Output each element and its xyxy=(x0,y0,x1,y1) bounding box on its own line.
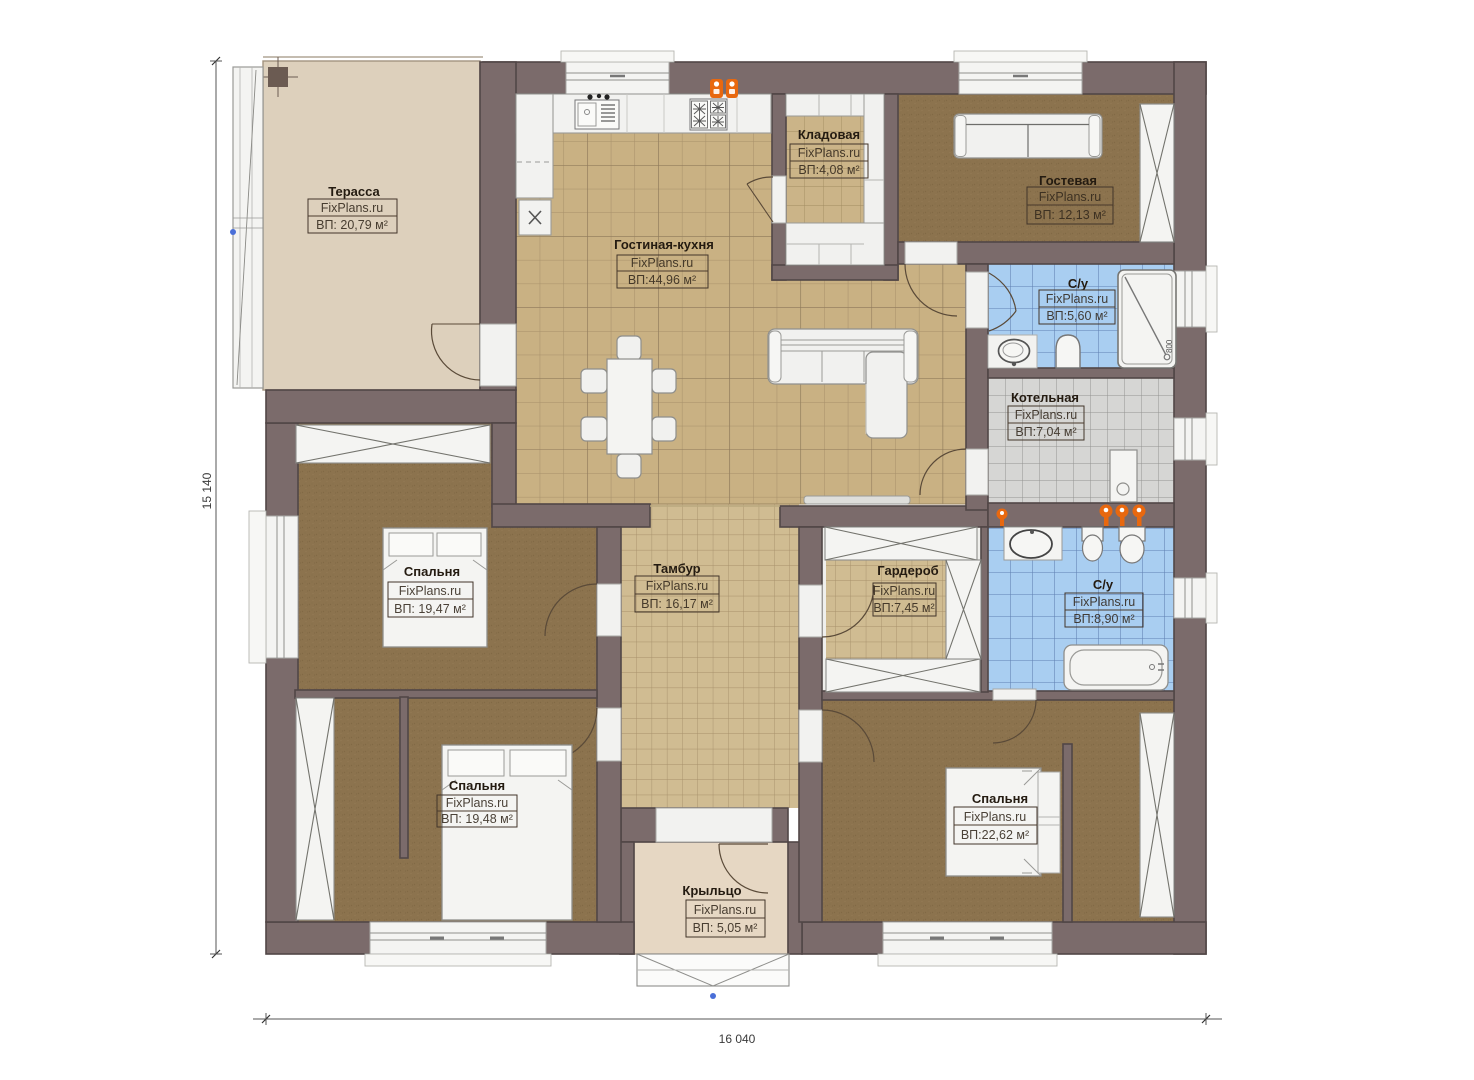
svg-text:FixPlans.ru: FixPlans.ru xyxy=(1073,595,1136,609)
svg-text:Терасса: Терасса xyxy=(328,184,380,199)
svg-text:FixPlans.ru: FixPlans.ru xyxy=(446,796,509,810)
svg-text:Спальня: Спальня xyxy=(449,778,505,793)
svg-text:FixPlans.ru: FixPlans.ru xyxy=(646,579,709,593)
svg-text:15 140: 15 140 xyxy=(200,472,214,509)
svg-text:ВП: 19,48 м²: ВП: 19,48 м² xyxy=(441,812,513,826)
svg-text:Котельная: Котельная xyxy=(1011,390,1079,405)
svg-text:ВП:8,90 м²: ВП:8,90 м² xyxy=(1073,612,1134,626)
svg-text:FixPlans.ru: FixPlans.ru xyxy=(964,810,1027,824)
svg-text:FixPlans.ru: FixPlans.ru xyxy=(798,146,861,160)
svg-text:ВП:22,62 м²: ВП:22,62 м² xyxy=(961,828,1029,842)
svg-text:Тамбур: Тамбур xyxy=(653,561,700,576)
svg-text:ВП:44,96 м²: ВП:44,96 м² xyxy=(628,273,696,287)
svg-text:ВП: 19,47 м²: ВП: 19,47 м² xyxy=(394,602,466,616)
svg-text:800: 800 xyxy=(1165,339,1174,353)
svg-text:FixPlans.ru: FixPlans.ru xyxy=(1039,190,1102,204)
svg-text:ВП:7,04 м²: ВП:7,04 м² xyxy=(1015,425,1076,439)
svg-text:ВП:7,45 м²: ВП:7,45 м² xyxy=(873,601,934,615)
svg-text:ВП: 5,05 м²: ВП: 5,05 м² xyxy=(693,921,758,935)
svg-text:ВП: 12,13 м²: ВП: 12,13 м² xyxy=(1034,208,1106,222)
svg-text:ВП:4,08 м²: ВП:4,08 м² xyxy=(798,163,859,177)
svg-text:FixPlans.ru: FixPlans.ru xyxy=(631,256,694,270)
svg-text:FixPlans.ru: FixPlans.ru xyxy=(1046,292,1109,306)
svg-text:FixPlans.ru: FixPlans.ru xyxy=(873,584,936,598)
svg-text:ВП: 20,79 м²: ВП: 20,79 м² xyxy=(316,218,388,232)
svg-text:FixPlans.ru: FixPlans.ru xyxy=(321,201,384,215)
svg-text:Спальня: Спальня xyxy=(972,791,1028,806)
svg-text:Гардероб: Гардероб xyxy=(877,563,938,578)
svg-text:ВП: 16,17 м²: ВП: 16,17 м² xyxy=(641,597,713,611)
svg-text:Спальня: Спальня xyxy=(404,564,460,579)
svg-text:16 040: 16 040 xyxy=(719,1032,756,1046)
svg-text:FixPlans.ru: FixPlans.ru xyxy=(694,903,757,917)
svg-text:Гостевая: Гостевая xyxy=(1039,173,1097,188)
svg-text:ВП:5,60 м²: ВП:5,60 м² xyxy=(1046,309,1107,323)
svg-text:FixPlans.ru: FixPlans.ru xyxy=(399,584,462,598)
svg-text:Кладовая: Кладовая xyxy=(798,127,860,142)
svg-text:С/у: С/у xyxy=(1093,577,1114,592)
svg-text:Крыльцо: Крыльцо xyxy=(682,883,741,898)
svg-text:Гостиная-кухня: Гостиная-кухня xyxy=(614,237,714,252)
svg-text:FixPlans.ru: FixPlans.ru xyxy=(1015,408,1078,422)
svg-text:С/у: С/у xyxy=(1068,276,1089,291)
